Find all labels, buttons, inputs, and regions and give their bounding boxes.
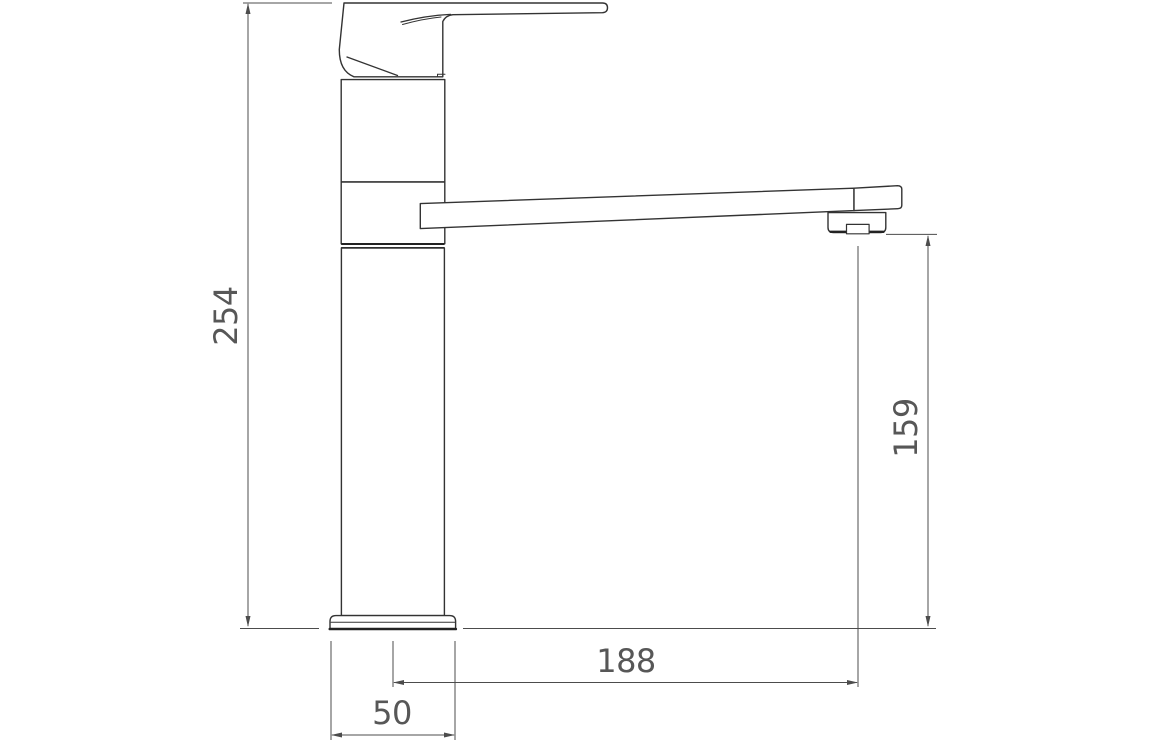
spout-reach-label: 188 bbox=[596, 642, 656, 680]
spout-height-dimension: 159 bbox=[887, 235, 931, 627]
cartridge-housing bbox=[341, 80, 445, 182]
technical-drawing-page: 254 159 188 50 bbox=[0, 0, 1156, 742]
arrow-left-icon bbox=[393, 680, 404, 685]
aerator-nozzle bbox=[847, 224, 870, 233]
arrow-right-icon bbox=[847, 680, 858, 685]
faucet-technical-drawing: 254 159 188 50 bbox=[0, 0, 1156, 742]
faucet-figure bbox=[330, 3, 902, 629]
base-width-dimension: 50 bbox=[331, 694, 455, 738]
arrow-right-icon bbox=[444, 733, 455, 738]
spout-end-cap bbox=[854, 186, 902, 211]
arrow-down-icon bbox=[926, 616, 931, 627]
spout-height-label: 159 bbox=[887, 398, 925, 458]
spout-tube bbox=[420, 188, 854, 228]
overall-height-label: 254 bbox=[207, 286, 245, 346]
arrow-up-icon bbox=[926, 235, 931, 246]
spout-reach-dimension: 188 bbox=[393, 642, 858, 685]
overall-height-dimension: 254 bbox=[207, 3, 251, 627]
arrow-down-icon bbox=[246, 616, 251, 627]
faucet-handle-outline bbox=[339, 3, 607, 77]
dimension-annotations: 254 159 188 50 bbox=[207, 3, 937, 740]
arrow-up-icon bbox=[246, 3, 251, 14]
faucet-column bbox=[341, 248, 444, 616]
arrow-left-icon bbox=[331, 733, 342, 738]
base-width-label: 50 bbox=[372, 694, 412, 732]
